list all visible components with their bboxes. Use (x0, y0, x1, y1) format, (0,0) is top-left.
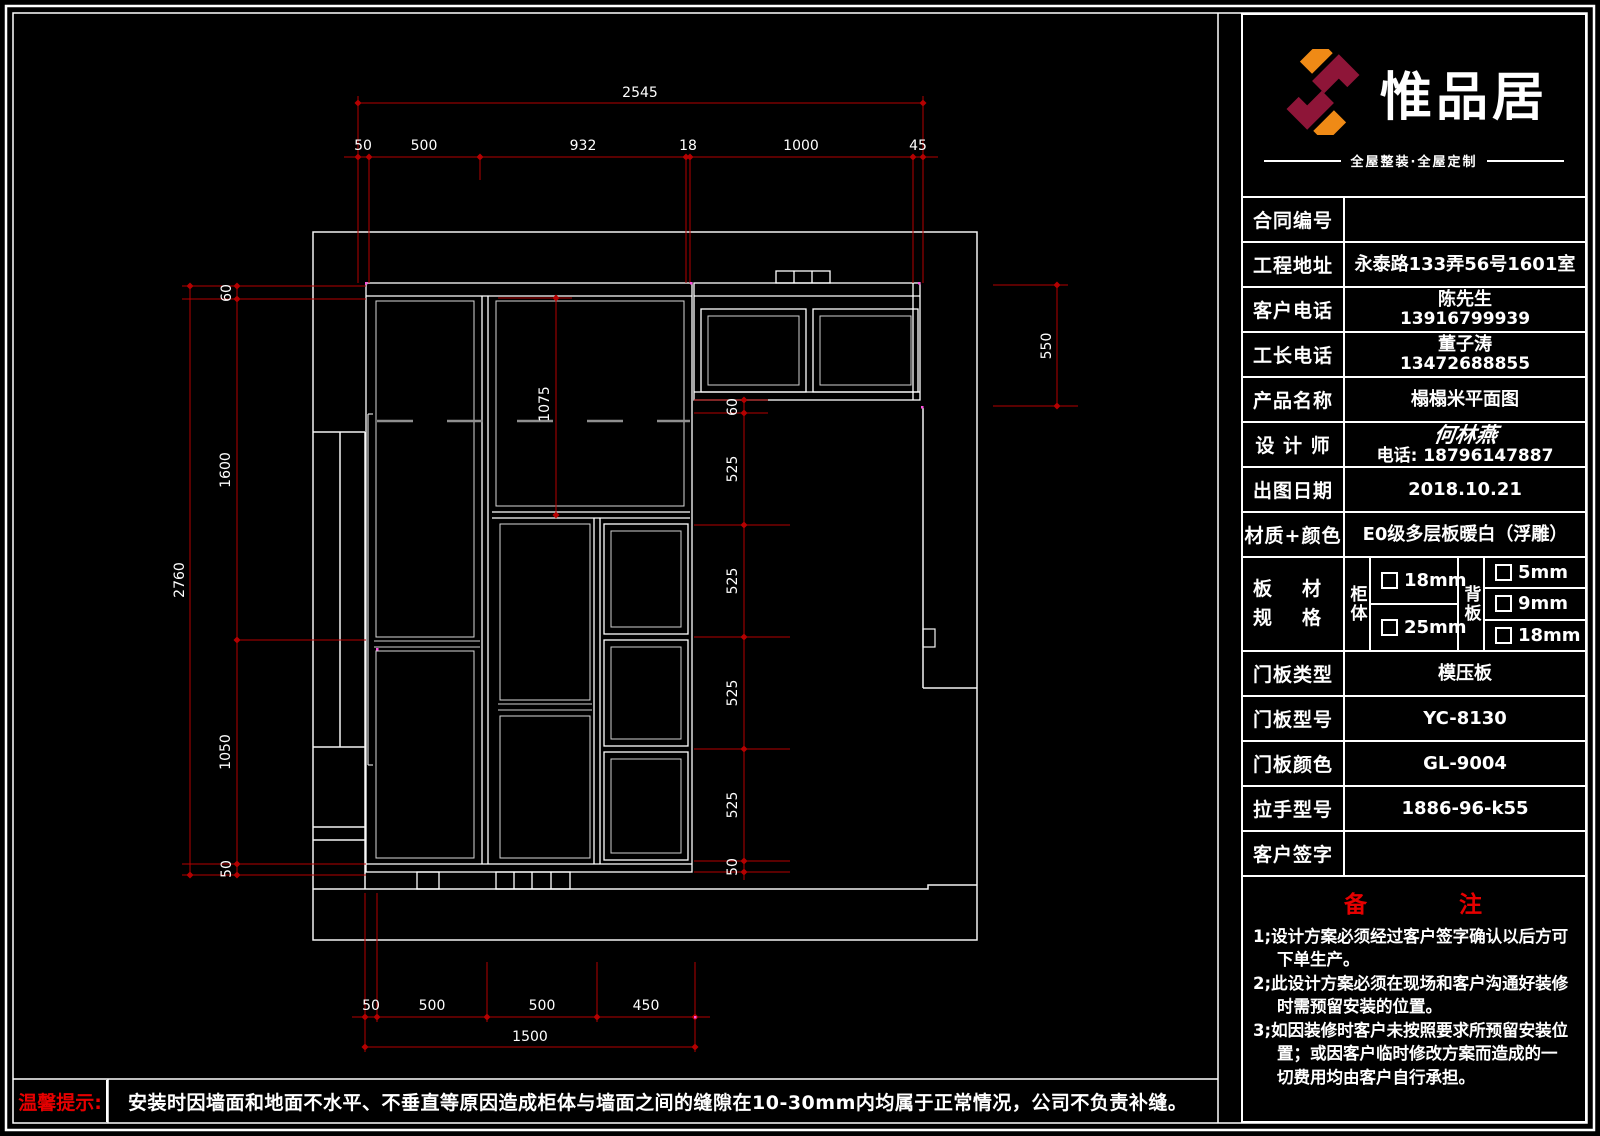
cabinet-thickness-options: 18mm 25mm (1371, 558, 1459, 650)
dim-label: 60 (219, 284, 235, 302)
option-5mm: 5mm (1485, 558, 1585, 589)
signature-area[interactable] (1345, 832, 1585, 875)
tagline-rule-left (1264, 160, 1341, 162)
notes-section: 备 注 1;设计方案必须经过客户签字确认以后方可下单生产。 2;此设计方案必须在… (1243, 877, 1585, 1121)
tb-value: 榻榻米平面图 (1345, 378, 1585, 421)
option-label: 25mm (1404, 617, 1467, 638)
checkbox-icon[interactable] (1495, 627, 1512, 644)
tb-value: 董子涛 13472688855 (1345, 333, 1585, 376)
board-label-line1: 板材 (1253, 580, 1351, 599)
dim-label: 525 (725, 456, 741, 483)
tb-label: 客户电话 (1243, 288, 1345, 331)
option-label: 5mm (1518, 562, 1568, 583)
tb-label: 合同编号 (1243, 198, 1345, 241)
tb-value: 陈先生 13916799939 (1345, 288, 1585, 331)
tb-value: 永泰路133弄56号1601室 (1345, 243, 1585, 286)
tb-label: 门板型号 (1243, 697, 1345, 740)
cabinet-body-label: 柜体 (1345, 558, 1371, 650)
brand-name: 惟品居 (1380, 55, 1548, 130)
dim-label: 450 (633, 998, 660, 1014)
option-18mm: 18mm (1371, 558, 1457, 605)
tb-label: 出图日期 (1243, 468, 1345, 511)
dim-top-total: 2545 (622, 85, 658, 101)
dim-cab-height: 550 (1039, 333, 1055, 360)
dim-bottom-total: 1500 (512, 1029, 548, 1045)
tb-row-signature: 客户签字 (1243, 832, 1585, 877)
tb-row-door-color: 门板颜色 GL-9004 (1243, 742, 1585, 787)
option-25mm: 25mm (1371, 605, 1457, 650)
tb-row-product: 产品名称 榻榻米平面图 (1243, 378, 1585, 423)
dim-label: 45 (909, 138, 927, 154)
warning-bar: 温馨提示: 安装时因墙面和地面不水平、不垂直等原因造成柜体与墙面之间的缝隙在10… (14, 1080, 1217, 1122)
tb-label: 工长电话 (1243, 333, 1345, 376)
option-label: 9mm (1518, 593, 1568, 614)
tatami-cabinet (366, 283, 692, 889)
tb-label: 工程地址 (1243, 243, 1345, 286)
title-block: 惟品居 全屋整装·全屋定制 合同编号 工程地址 永泰路133弄56号1601室 … (1241, 13, 1587, 1123)
customer-number: 13916799939 (1400, 310, 1530, 329)
checkbox-icon[interactable] (1495, 564, 1512, 581)
cad-sheet: 2545 50 500 932 18 1000 45 2760 60 1600 … (0, 0, 1600, 1136)
foreman-name: 董子涛 (1438, 335, 1492, 355)
dim-inner-height: 1075 (537, 386, 553, 422)
brand-tagline: 全屋整装·全屋定制 (1351, 151, 1478, 170)
tb-label: 产品名称 (1243, 378, 1345, 421)
tagline-rule-right (1487, 160, 1564, 162)
tb-label: 门板类型 (1243, 652, 1345, 695)
dim-label: 50 (362, 998, 380, 1014)
dim-label: 50 (725, 858, 741, 876)
dim-label: 500 (419, 998, 446, 1014)
tb-row-date: 出图日期 2018.10.21 (1243, 468, 1585, 513)
foreman-number: 13472688855 (1400, 355, 1530, 374)
notes-title: 备 注 (1253, 885, 1573, 919)
tb-label: 客户签字 (1243, 832, 1345, 875)
note-item: 1;设计方案必须经过客户签字确认以后方可下单生产。 (1253, 925, 1573, 972)
warning-text: 安装时因墙面和地面不水平、不垂直等原因造成柜体与墙面之间的缝隙在10-30mm内… (108, 1080, 1217, 1122)
checkbox-icon[interactable] (1381, 619, 1398, 636)
tb-row-designer: 设 计 师 何林燕 电话: 18796147887 (1243, 423, 1585, 468)
dim-label: 525 (725, 568, 741, 595)
dim-label: 932 (570, 138, 597, 154)
tb-row-contract: 合同编号 (1243, 198, 1585, 243)
option-label: 18mm (1518, 625, 1581, 646)
tb-row-material: 材质+颜色 E0级多层板暖白（浮雕） (1243, 513, 1585, 558)
tb-value: 模压板 (1345, 652, 1585, 695)
tb-row-customer-phone: 客户电话 陈先生 13916799939 (1243, 288, 1585, 333)
checkbox-icon[interactable] (1381, 572, 1398, 589)
board-label-line2: 规格 (1253, 609, 1351, 628)
dim-label: 525 (725, 680, 741, 707)
dim-label: 50 (354, 138, 372, 154)
warning-label: 温馨提示: (14, 1080, 108, 1122)
tb-value: E0级多层板暖白（浮雕） (1345, 513, 1585, 556)
dim-left-total: 2760 (172, 562, 188, 598)
dim-label: 500 (411, 138, 438, 154)
tb-row-board-spec: 板材 规格 柜体 18mm 25mm 背板 (1243, 558, 1585, 652)
tb-row-door-type: 门板类型 模压板 (1243, 652, 1585, 697)
dim-label: 1600 (218, 452, 234, 488)
tb-row-address: 工程地址 永泰路133弄56号1601室 (1243, 243, 1585, 288)
tb-label: 设 计 师 (1243, 423, 1345, 466)
designer-signature: 何林燕 (1432, 424, 1498, 447)
tb-value: YC-8130 (1345, 697, 1585, 740)
tb-value: GL-9004 (1345, 742, 1585, 785)
wall-cabinet (694, 271, 920, 400)
tb-label: 拉手型号 (1243, 787, 1345, 830)
tb-row-foreman-phone: 工长电话 董子涛 13472688855 (1243, 333, 1585, 378)
back-thickness-options: 5mm 9mm 18mm (1485, 558, 1585, 650)
brand-logo-icon (1280, 49, 1366, 135)
dim-label: 18 (679, 138, 697, 154)
dim-label: 1000 (783, 138, 819, 154)
dim-label: 60 (725, 398, 741, 416)
tb-label: 门板颜色 (1243, 742, 1345, 785)
tb-value: 2018.10.21 (1345, 468, 1585, 511)
option-18mm-back: 18mm (1485, 621, 1585, 650)
note-item: 2;此设计方案必须在现场和客户沟通好装修时需预留安装的位置。 (1253, 972, 1573, 1019)
note-item: 3;如因装修时客户未按照要求所预留安装位置；或因客户临时修改方案而造成的一切费用… (1253, 1019, 1573, 1089)
dim-label: 500 (529, 998, 556, 1014)
dim-label: 50 (219, 860, 235, 878)
dim-label: 525 (725, 792, 741, 819)
brand-header: 惟品居 全屋整装·全屋定制 (1243, 15, 1585, 198)
back-panel-label: 背板 (1459, 558, 1485, 650)
checkbox-icon[interactable] (1495, 595, 1512, 612)
tb-value (1345, 198, 1585, 241)
option-label: 18mm (1404, 570, 1467, 591)
customer-name: 陈先生 (1438, 290, 1492, 310)
option-9mm: 9mm (1485, 589, 1585, 620)
tb-value: 1886-96-k55 (1345, 787, 1585, 830)
tb-label: 材质+颜色 (1243, 513, 1345, 556)
tb-row-handle-model: 拉手型号 1886-96-k55 (1243, 787, 1585, 832)
designer-phone: 电话: 18796147887 (1377, 447, 1554, 466)
dim-label: 1050 (218, 734, 234, 770)
tb-label: 板材 规格 (1243, 558, 1345, 650)
tb-value: 何林燕 电话: 18796147887 (1345, 423, 1585, 466)
tb-row-door-model: 门板型号 YC-8130 (1243, 697, 1585, 742)
room-walls (313, 232, 977, 940)
dimension-lines (182, 96, 1078, 1052)
